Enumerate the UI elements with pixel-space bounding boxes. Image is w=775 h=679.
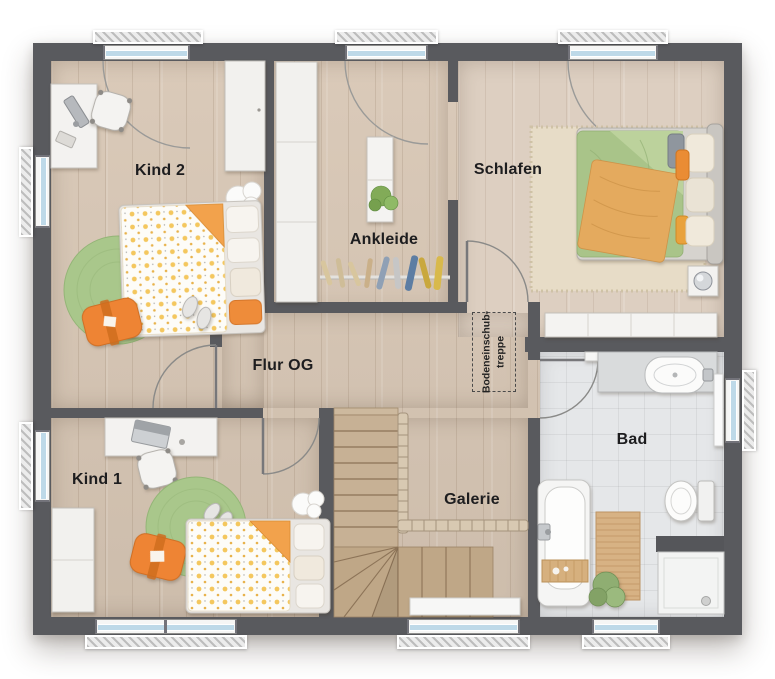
window-sill [19,422,33,510]
window-glass [595,624,657,631]
window-sill [558,30,668,44]
wall-bad-west-b [528,418,540,617]
wall-ankleide-schlafen-b [448,200,458,302]
label-flur: Flur OG [253,357,314,375]
window-schlafen-north [568,45,658,60]
wall-schlafen-bad [525,337,724,352]
label-bad: Bad [617,431,648,449]
window-sill [742,370,756,451]
window-sill [19,147,33,237]
label-kind2: Kind 2 [135,162,185,180]
label-attic-hatch-line1: Bodeneinschub- [480,311,494,393]
label-schlafen: Schlafen [474,161,542,179]
window-glass [348,50,425,57]
schlafen-floor [458,61,724,337]
label-kind1: Kind 1 [72,471,122,489]
label-attic-hatch-line2: treppe [494,311,508,393]
window-sill [582,635,670,649]
wall-kind2-ankleide [264,61,274,307]
window-glass [730,381,737,440]
window-bad-east [725,378,740,443]
wall-flur-north [210,302,467,313]
window-ankleide-north [345,45,428,60]
window-glass [40,433,47,499]
label-ankleide: Ankleide [350,231,418,249]
window-glass [571,50,655,57]
window-glass [40,158,47,225]
window-kind1-west [35,430,50,502]
wall-bad-west-a [528,302,540,360]
window-galerie-south [407,619,520,634]
window-kind2-west [35,155,50,228]
wall-kind1-north [33,408,263,418]
wall-kind1-stairs [319,408,334,617]
wall-kind2-door-jamb [210,313,222,347]
label-galerie: Galerie [444,491,500,509]
floor-plan: Kind 2 Ankleide Schlafen Flur OG Kind 1 … [0,0,775,679]
bath-tile-floor [540,352,724,617]
window-sill [93,30,203,44]
window-glass [106,50,187,57]
window-mullion [164,620,167,633]
wall-ankleide-schlafen-a [448,61,458,102]
window-kind2-north [103,45,190,60]
window-glass [410,624,517,631]
window-sill [335,30,438,44]
label-attic-hatch: Bodeneinschub- treppe [480,311,507,393]
window-sill [397,635,530,649]
window-bad-south [592,619,660,634]
window-sill [85,635,247,649]
